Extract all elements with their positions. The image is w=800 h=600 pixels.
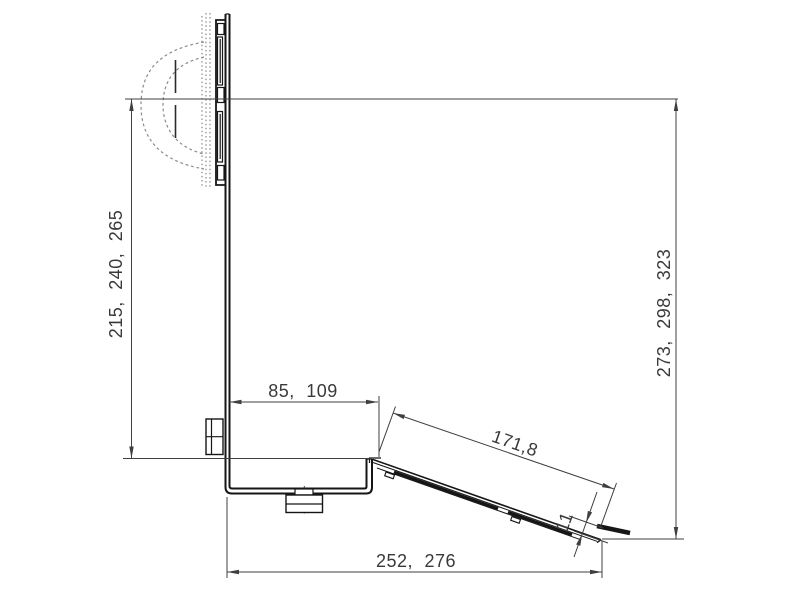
wall-bracket-outline [226, 14, 373, 494]
dimension-base-depth: 252, 276 [227, 497, 602, 578]
tray-rail-segment-1 [394, 472, 498, 509]
arrowhead [576, 534, 582, 546]
dimension-foot-depth: 85, 109 [230, 381, 380, 457]
plate-slot-cap-top [218, 24, 225, 35]
speaker-cone-inner-arc [163, 57, 204, 154]
arrowhead [602, 483, 614, 489]
wall-bolt [206, 419, 223, 455]
speaker-cone-outer-arc [141, 42, 204, 169]
arrowhead [129, 99, 133, 111]
bracket-dimension-drawing: 215, 240, 265 273, 298, 323 85, 109 171,… [0, 0, 800, 600]
arrowhead [393, 413, 405, 419]
plate-slot-cap-bottom [218, 166, 225, 181]
tray-extension-line-end [600, 483, 617, 529]
tilted-tray [370, 458, 631, 543]
dim-foot-depth-label: 85, 109 [268, 381, 338, 401]
bracket-foot-inner-edge [230, 459, 367, 489]
mounting-plate [216, 20, 226, 185]
dimension-right-height: 273, 298, 323 [602, 99, 684, 539]
arrowhead [230, 400, 242, 404]
dim-base-depth-label: 252, 276 [376, 551, 456, 571]
base-bolt-washer [295, 489, 313, 495]
speaker-hidden-outline [141, 13, 210, 189]
tray-screw-1 [385, 472, 395, 479]
tray-end-lip [597, 526, 630, 533]
plate-slot-cap-middle [218, 88, 225, 103]
arrowhead [674, 527, 678, 539]
dimension-left-height: 215, 240, 265 [106, 99, 678, 459]
base-bolt [286, 486, 323, 514]
arrowhead [590, 570, 602, 574]
dim-right-height-label: 273, 298, 323 [654, 249, 674, 378]
technical-drawing-canvas: 215, 240, 265 273, 298, 323 85, 109 171,… [0, 0, 800, 600]
arrowhead [227, 570, 239, 574]
dim-left-height-label: 215, 240, 265 [106, 210, 126, 339]
tray-bottom-line [377, 468, 581, 540]
arrowhead [366, 400, 378, 404]
arrowhead [129, 447, 133, 459]
arrowhead [586, 511, 592, 523]
arrowhead [674, 99, 678, 111]
